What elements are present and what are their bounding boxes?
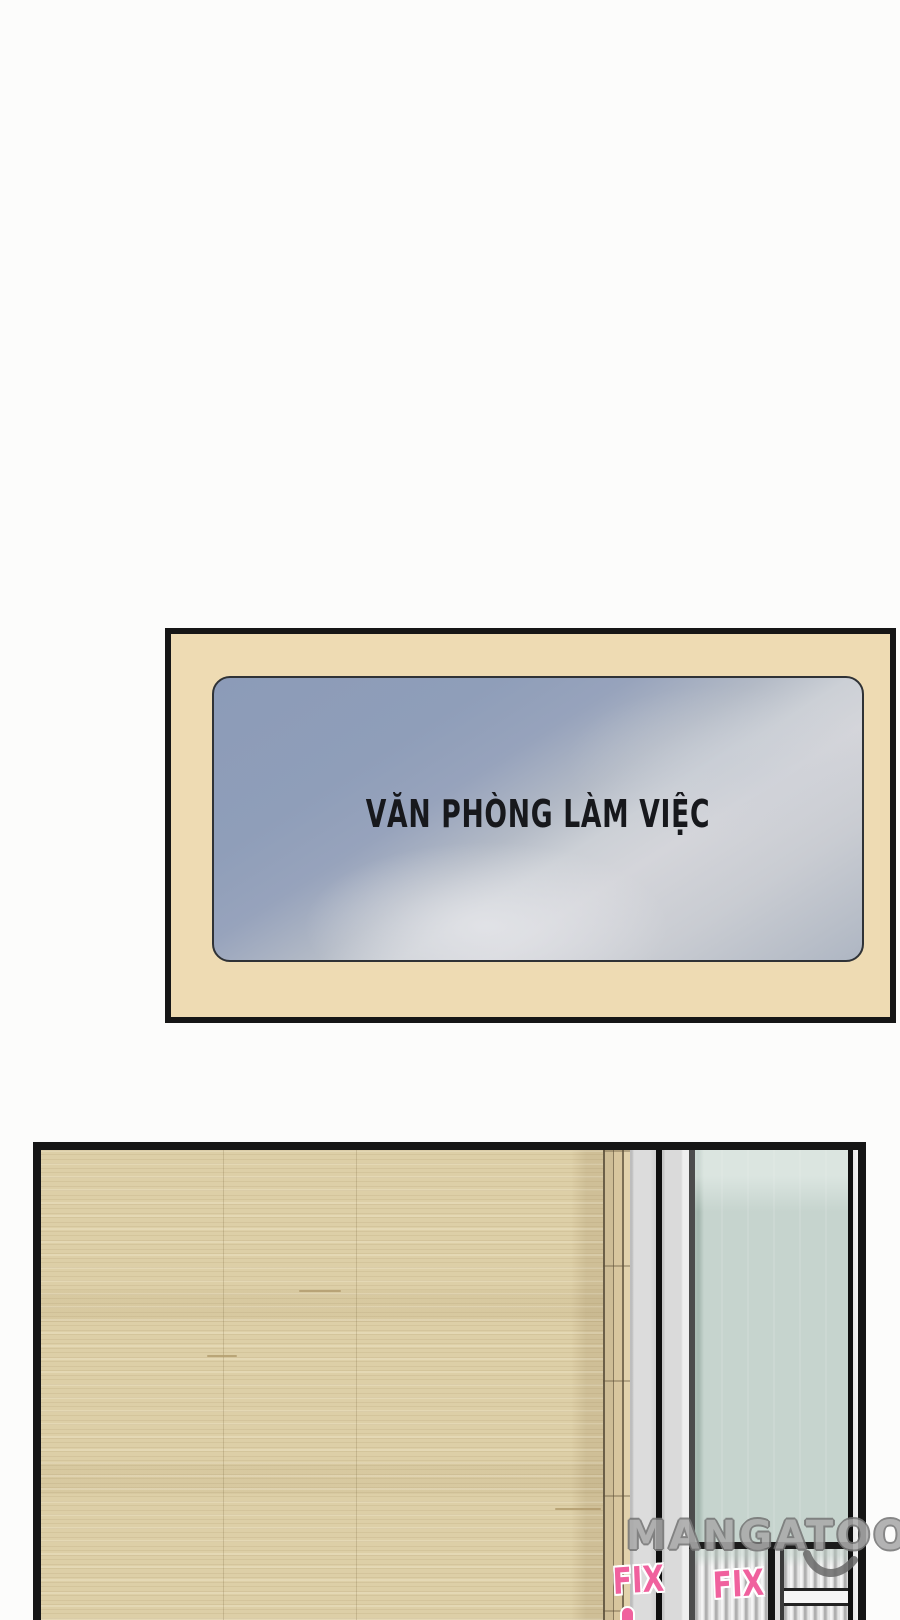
shutter-band [784, 1591, 848, 1603]
shutter-band-edge [784, 1603, 848, 1606]
wood-grain-dash [299, 1290, 341, 1292]
wood-seam [223, 1150, 224, 1620]
sign-panel-background: VĂN PHÒNG LÀM VIỆC [171, 634, 890, 1017]
wood-seam [356, 1150, 357, 1620]
sign-label: VĂN PHÒNG LÀM VIỆC [311, 792, 765, 836]
fix-label-fragment [622, 1608, 633, 1620]
wood-grain-dash [207, 1355, 237, 1357]
comic-page: VĂN PHÒNG LÀM VIỆC MANGATOON [0, 0, 900, 1620]
wood-grain-dash [555, 1508, 601, 1510]
comic-panel-office-sign: VĂN PHÒNG LÀM VIỆC [165, 628, 896, 1023]
fix-label: FIX [612, 1559, 665, 1603]
shutter-divider [768, 1549, 775, 1620]
wood-door [41, 1150, 603, 1620]
fix-label: FIX [712, 1563, 765, 1607]
mangatoon-smile-icon [800, 1549, 866, 1587]
sign-plate: VĂN PHÒNG LÀM VIỆC [212, 676, 864, 962]
